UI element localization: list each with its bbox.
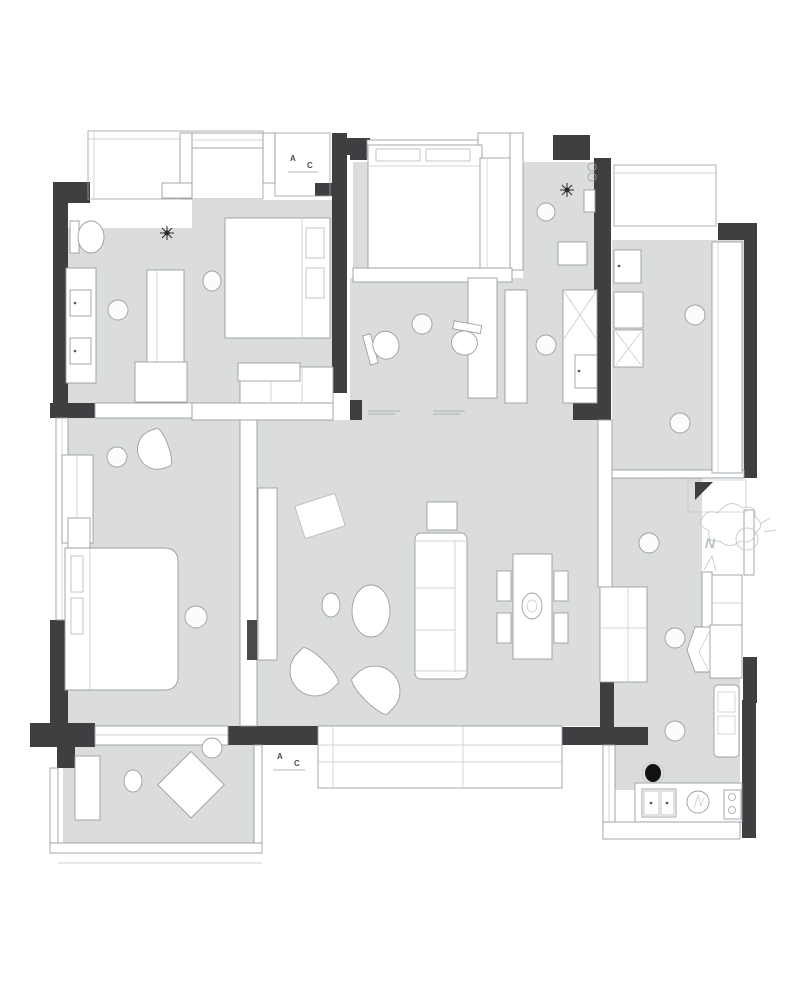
- bed: [368, 145, 482, 268]
- downlight-icon: [685, 305, 705, 325]
- ac-label-bottom-a: A: [277, 752, 283, 761]
- wall-segment: [744, 447, 757, 478]
- centerpiece: [522, 593, 542, 619]
- wall-light: [510, 133, 523, 270]
- sink: [70, 338, 91, 364]
- washer: [614, 292, 643, 328]
- wall-segment: [350, 143, 367, 160]
- ac-label-top-c: C: [307, 161, 313, 170]
- downlight-icon: [108, 300, 128, 320]
- wall-light: [162, 183, 192, 198]
- nightstand: [68, 518, 90, 548]
- downlight-icon: [639, 533, 659, 553]
- downlight-icon: [536, 335, 556, 355]
- side-table: [427, 502, 457, 530]
- downlight-icon: [537, 203, 555, 221]
- hall-cabinet: [600, 587, 647, 682]
- wall-segment: [744, 240, 757, 447]
- downlight-icon: [665, 628, 685, 648]
- bench: [238, 363, 300, 381]
- shower-fixture: [558, 242, 587, 265]
- floor-plan: N A C A C: [0, 0, 800, 1000]
- wall-light: [744, 510, 754, 575]
- balcony-railing: [50, 768, 58, 843]
- range-hood-icon: [645, 764, 661, 782]
- pillow: [71, 556, 83, 592]
- wall-segment: [600, 682, 614, 728]
- planter-bench: [75, 756, 100, 820]
- wall-light: [192, 403, 333, 420]
- wall-light: [505, 290, 527, 403]
- vanity-counter: [66, 268, 96, 383]
- desk: [135, 362, 187, 402]
- wall-segment: [315, 183, 332, 196]
- bay-window: [318, 726, 562, 788]
- wall-fixture: [584, 190, 595, 212]
- dining-chair: [497, 571, 511, 601]
- downlight-icon: [665, 721, 685, 741]
- wall-light: [598, 420, 612, 587]
- balcony-railing: [50, 843, 262, 853]
- downlight-icon: [185, 606, 207, 628]
- floor-plan-canvas: N A C A C: [0, 0, 800, 1000]
- bedroom-3: [368, 145, 510, 268]
- wall-segment: [332, 133, 347, 393]
- compass-north-label: N: [705, 535, 716, 551]
- downlight-icon: [670, 413, 690, 433]
- wall-light: [702, 572, 712, 628]
- pillow: [306, 268, 324, 298]
- wall-segment: [743, 657, 757, 703]
- coffee-table: [352, 585, 390, 637]
- side-stool: [322, 593, 340, 617]
- toilet-icon: [78, 221, 104, 253]
- wall-segment: [742, 700, 756, 838]
- wall-light: [240, 418, 257, 726]
- wall-segment: [560, 727, 648, 745]
- pillow: [426, 149, 470, 161]
- pillow: [376, 149, 420, 161]
- wall-segment: [57, 747, 75, 768]
- counter-bar: [603, 822, 740, 839]
- wall-light: [478, 133, 512, 160]
- sofa: [415, 533, 467, 679]
- wall-light: [263, 133, 275, 183]
- stool: [124, 770, 142, 792]
- nightstand: [203, 271, 221, 291]
- downlight-icon: [412, 314, 432, 334]
- wardrobe: [480, 158, 510, 268]
- ceiling-light-icon: [560, 183, 574, 197]
- sink: [70, 290, 91, 316]
- dining-chair: [554, 613, 568, 643]
- hob-unit: [724, 790, 741, 819]
- ac-label-top-a: A: [290, 154, 296, 163]
- downlight-icon: [107, 447, 127, 467]
- pillow: [71, 598, 83, 634]
- balcony-railing: [254, 745, 262, 843]
- wall-segment: [30, 723, 95, 747]
- counter: [712, 242, 742, 473]
- wall-segment: [228, 726, 320, 745]
- tv-console: [258, 488, 277, 660]
- wall-segment: [553, 135, 590, 160]
- wall-segment: [718, 223, 757, 240]
- wall-segment: [53, 182, 90, 203]
- tv-icon: [247, 620, 257, 660]
- stool: [202, 738, 222, 758]
- dining-chair: [497, 613, 511, 643]
- ac-label-bottom-c: C: [294, 759, 300, 768]
- window: [192, 133, 263, 148]
- dining-chair: [554, 571, 568, 601]
- fridge: [710, 625, 742, 678]
- pillow: [306, 228, 324, 258]
- ceiling-light-icon: [160, 226, 174, 240]
- wall-segment: [50, 403, 95, 418]
- wall-segment: [350, 400, 362, 420]
